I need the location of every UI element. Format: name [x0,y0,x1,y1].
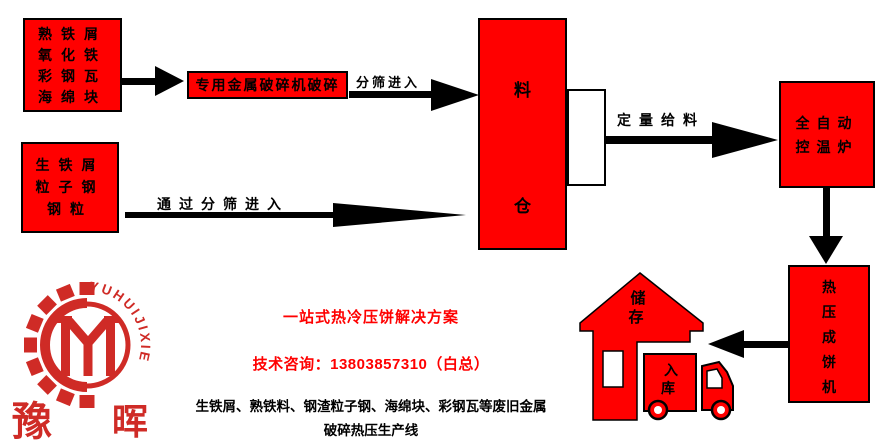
press-box: 热 压 成 饼 机 [788,265,870,403]
furnace-box-line: 全自动 [781,111,873,135]
arrow-scrap-to-crusher [121,66,184,96]
truck-wheel-hub [654,406,662,414]
arrow-shaft [744,341,788,348]
house-char-top: 储 [630,289,645,307]
flowchart-canvas: 储 存 入 库 [0,0,892,441]
arrow-press-to-storage [708,330,788,358]
arrow-shaft [349,91,433,98]
arrow-head-icon [333,203,466,227]
furnace-box-line: 控温炉 [781,135,873,159]
arrow-shaft [606,136,716,144]
sieve-arrow-label: 分筛进入 [356,72,420,91]
furnace-box: 全自动 控温炉 [779,81,875,188]
contact-phone-text: 技术咨询：13803857310（白总） [178,353,564,374]
house-char-bottom: 存 [628,308,643,326]
scrap-box-bottom-line: 粒子钢 [23,176,117,198]
brand-char-hui: 晖 [112,404,148,440]
crusher-box-label: 专用金属破碎机破碎 [196,77,340,93]
brand-char-yu: 豫 [12,402,52,441]
press-box-char: 机 [790,375,868,400]
description-line-1: 生铁屑、熟铁料、钢渣粒子钢、海绵块、彩钢瓦等废旧金属 [178,395,564,415]
crusher-box: 专用金属破碎机破碎 [187,71,348,99]
truck-char-bottom: 库 [661,380,675,396]
ym-monogram-icon [57,316,119,376]
arrow-head-icon [155,66,184,96]
scrap-box-top-line: 熟铁屑 [25,24,120,45]
arrow-furnace-to-press [809,188,843,264]
scrap-box-top: 熟铁屑 氧化铁 彩钢瓦 海绵块 [23,18,122,112]
arrow-shaft [823,188,830,238]
house-door [603,351,623,387]
scrap-box-bottom-line: 钢粒 [23,198,117,220]
scrap-box-top-line: 氧化铁 [25,45,120,66]
warehouse-truck-icon: 入 库 [644,354,733,419]
arrow-head-icon [712,122,778,158]
silo-discharge-bracket [567,89,606,186]
scrap-box-bottom-line: 生铁屑 [23,154,117,176]
press-box-char: 成 [790,325,868,350]
press-box-char: 热 [790,275,868,300]
scrap-box-top-line: 海绵块 [25,87,120,108]
arrow-head-icon [809,236,843,264]
silo-char-top: 料 [480,76,565,101]
silo-box: 料 仓 [478,18,567,250]
arrow-head-icon [431,79,479,111]
press-box-char: 饼 [790,350,868,375]
arrow-head-icon [708,330,744,358]
company-logo-icon: YUHUIJIXIE [24,279,153,408]
arrow-shaft [121,78,157,85]
truck-wheel-hub [717,406,725,414]
silo-char-bottom: 仓 [480,192,565,217]
scrap-box-bottom: 生铁屑 粒子钢 钢粒 [21,142,119,233]
description-line-2: 破碎热压生产线 [178,419,564,439]
truck-char-top: 入 [664,362,678,378]
press-box-char: 压 [790,300,868,325]
bypass-arrow-label: 通过分筛进入 [157,194,289,214]
scrap-box-top-line: 彩钢瓦 [25,66,120,87]
feed-arrow-label: 定量给料 [617,110,705,130]
footer-text-block: 一站式热冷压饼解决方案 技术咨询：13803857310（白总） 生铁屑、熟铁料… [178,306,564,439]
slogan-text: 一站式热冷压饼解决方案 [178,306,564,327]
